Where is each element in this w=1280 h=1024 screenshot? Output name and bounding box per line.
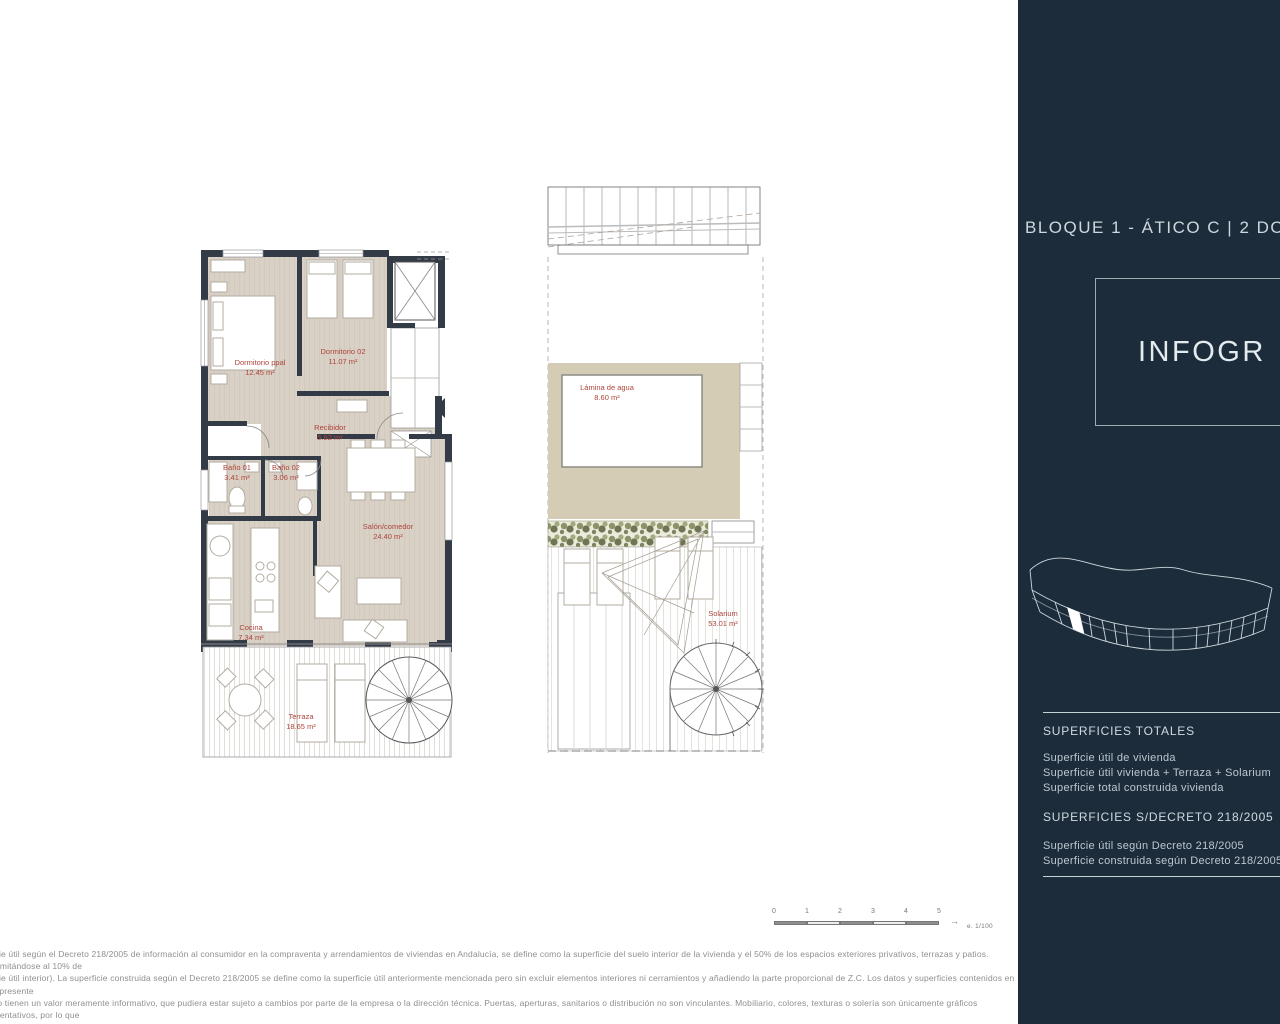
scale-arrow-icon: → — [950, 916, 959, 926]
terrace — [203, 647, 452, 757]
room-label-dormitorio-ppal: Dormitorio ppal12.45 m² — [235, 358, 286, 378]
infographic-label: INFOGR — [1096, 336, 1266, 369]
scale-tick: 0 — [772, 908, 776, 915]
apartment-floor-plan — [199, 248, 455, 763]
room-label-lamina-de-agua: Lámina de agua8.60 m² — [580, 383, 634, 403]
building-location-diagram — [1024, 512, 1280, 684]
room-label-salon-comedor: Salón/comedor24.40 m² — [363, 522, 413, 542]
room-label-dormitorio-02: Dormitorio 0211.07 m² — [320, 347, 365, 367]
room-label-cocina: Cocina7.34 m² — [238, 623, 263, 643]
spiral-stair — [366, 657, 452, 743]
elevator-shaft — [395, 262, 435, 320]
scale-tick: 1 — [805, 908, 809, 915]
decree-heading: SUPERFICIES S/DECRETO 218/2005 — [1043, 810, 1274, 824]
disclaimer-line: ficie útil interior). La superficie cons… — [0, 972, 1018, 996]
infographic-sheet: Dormitorio ppal12.45 m² Dormitorio 0211.… — [0, 0, 1280, 1024]
room-label-terraza: Terraza18.65 m² — [286, 712, 316, 732]
scale-tick: 2 — [838, 908, 842, 915]
infographic-box: INFOGR — [1095, 278, 1280, 426]
room-label-recibidor: Recibidor5.92 m² — [314, 423, 346, 443]
pergola — [548, 187, 760, 254]
divider — [1043, 712, 1280, 713]
totals-item: Superficie útil vivienda + Terraza + Sol… — [1043, 767, 1271, 779]
info-sidebar: BLOQUE 1 - ÁTICO C | 2 DORM INFOGR — [1018, 0, 1280, 1024]
room-label-bano-01: Baño 013.41 m² — [223, 463, 251, 483]
side-strip — [740, 363, 762, 451]
scale-bar-segments — [774, 921, 939, 925]
decree-item: Superficie útil según Decreto 218/2005 — [1043, 840, 1244, 852]
totals-item: Superficie total construida vivienda — [1043, 782, 1224, 794]
unit-title: BLOQUE 1 - ÁTICO C | 2 DORM — [1025, 218, 1280, 238]
scale-tick: 4 — [904, 908, 908, 915]
scale-tick: 5 — [937, 908, 941, 915]
disclaimer-line: nto tienen un valor meramente informativ… — [0, 997, 1018, 1021]
divider — [1043, 876, 1280, 877]
disclaimer-line: ficie útil según el Decreto 218/2005 de … — [0, 948, 1018, 972]
legal-disclaimer: ficie útil según el Decreto 218/2005 de … — [0, 948, 1018, 1024]
scale-tick: 3 — [871, 908, 875, 915]
highlighted-unit — [1067, 607, 1084, 634]
solarium-roof-plan — [544, 183, 768, 758]
scale-ratio-label: e. 1/100 — [967, 923, 993, 930]
room-label-solarium: Solarium53.01 m² — [708, 609, 738, 629]
decree-item: Superficie construida según Decreto 218/… — [1043, 855, 1280, 867]
room-label-bano-02: Baño 023.06 m² — [272, 463, 300, 483]
totals-heading: SUPERFICIES TOTALES — [1043, 724, 1195, 738]
scale-bar: 0 1 2 3 4 5 → e. 1/100 — [770, 908, 1030, 942]
planting-strip — [548, 521, 708, 547]
totals-item: Superficie útil de vivienda — [1043, 752, 1176, 764]
